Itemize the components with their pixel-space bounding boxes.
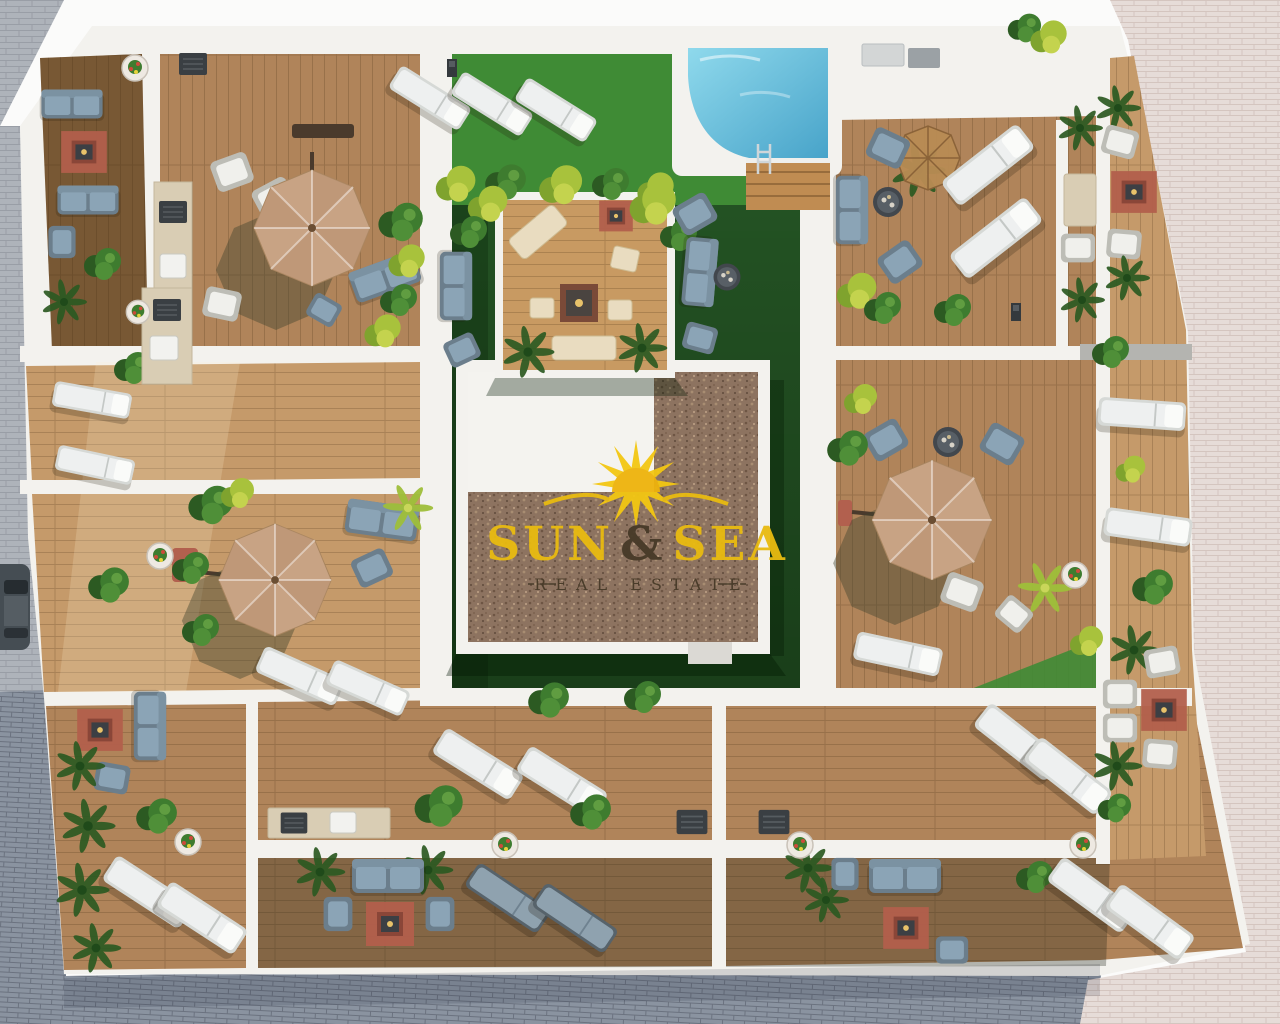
round-table xyxy=(873,187,903,217)
garden-chair xyxy=(1142,738,1179,770)
deck-sofa xyxy=(552,336,616,360)
rooftop-unit xyxy=(908,48,940,68)
brand-tagline-text: REAL ESTATE xyxy=(534,575,749,594)
garden-sofa xyxy=(56,186,121,217)
flower-pot xyxy=(1062,562,1088,588)
lamp-post xyxy=(1011,303,1021,321)
utility-box xyxy=(759,810,790,834)
garden-chair xyxy=(1061,234,1095,263)
lamp-post xyxy=(447,59,457,77)
garden-sofa xyxy=(833,174,868,246)
round-table xyxy=(933,427,963,457)
fire-table xyxy=(560,284,598,322)
deck-seat xyxy=(530,298,554,318)
garden-chair xyxy=(426,897,455,931)
garden-chair xyxy=(936,936,968,963)
grill-box xyxy=(179,53,207,75)
flower-pot xyxy=(175,829,201,855)
outdoor-rug xyxy=(61,131,107,173)
deck-rug xyxy=(599,201,633,232)
round-table xyxy=(714,264,741,291)
garden-sofa xyxy=(678,234,719,309)
flower-pot xyxy=(1070,832,1096,858)
garden-chair xyxy=(324,897,353,931)
outdoor-rug xyxy=(366,902,414,946)
outdoor-rug xyxy=(1141,689,1187,731)
garden-sofa xyxy=(867,859,943,896)
terracotta-planter xyxy=(838,500,852,526)
utility-box xyxy=(677,810,708,834)
flower-pot xyxy=(787,832,813,858)
sun-lounger xyxy=(1095,397,1187,438)
outdoor-rug xyxy=(883,907,929,949)
garden-chair xyxy=(48,226,75,258)
outdoor-rug xyxy=(77,709,123,751)
flower-pot xyxy=(492,832,518,858)
garden-sofa xyxy=(131,690,166,762)
flower-pot xyxy=(122,55,148,81)
garden-sofa xyxy=(437,250,472,322)
outdoor-kitchen xyxy=(268,808,390,838)
deck-seat xyxy=(608,300,632,320)
roof-chimney xyxy=(688,642,732,664)
flower-pot xyxy=(147,543,173,569)
deck-seat xyxy=(610,246,640,273)
garden-sofa xyxy=(40,90,105,121)
flower-pot xyxy=(126,300,149,323)
render-canvas: SUN&SEA REAL ESTATE xyxy=(0,0,1280,1024)
property-aerial-render: SUN&SEA REAL ESTATE xyxy=(0,0,1280,1024)
parked-car xyxy=(0,564,30,650)
garden-chair xyxy=(1103,680,1137,709)
garden-chair xyxy=(1143,645,1182,679)
garden-chair xyxy=(1106,228,1143,260)
outdoor-rug xyxy=(1111,171,1157,213)
garden-chair xyxy=(1103,714,1137,743)
planter-box xyxy=(1064,174,1096,226)
rooftop-unit xyxy=(862,44,904,66)
garden-chair xyxy=(831,858,858,890)
garden-bench xyxy=(292,124,354,138)
brand-name-text: SUN&SEA xyxy=(486,517,788,572)
garden-sofa xyxy=(350,859,426,896)
outdoor-kitchen xyxy=(142,288,192,384)
